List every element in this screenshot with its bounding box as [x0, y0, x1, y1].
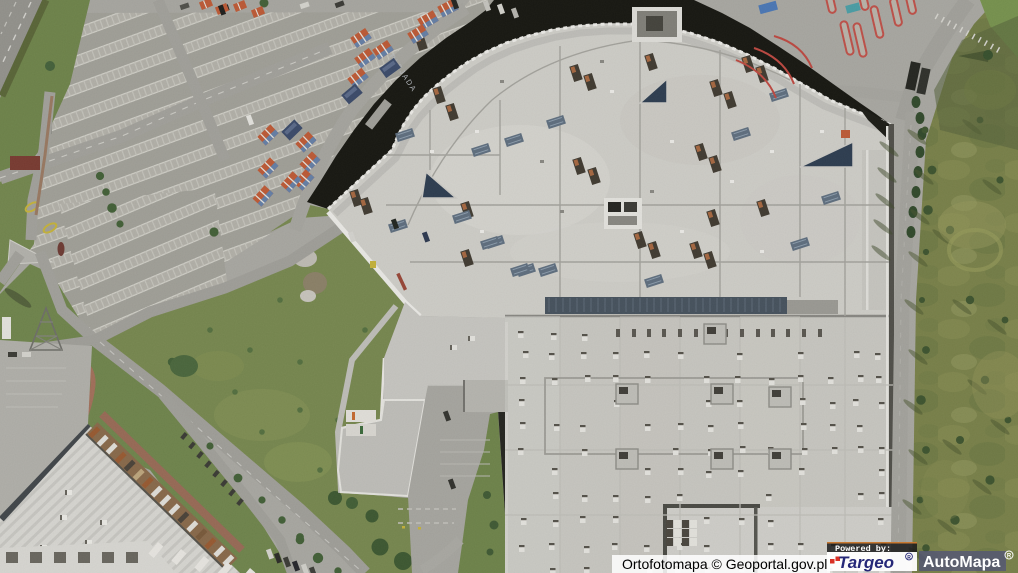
- svg-text:Ortofotomapa © Geoportal.gov.p: Ortofotomapa © Geoportal.gov.pl: [622, 556, 827, 572]
- svg-text:R: R: [907, 555, 911, 561]
- svg-text:AutoMapa: AutoMapa: [923, 554, 1000, 571]
- svg-text:R: R: [1007, 554, 1012, 560]
- svg-text:Targeo: Targeo: [838, 553, 894, 572]
